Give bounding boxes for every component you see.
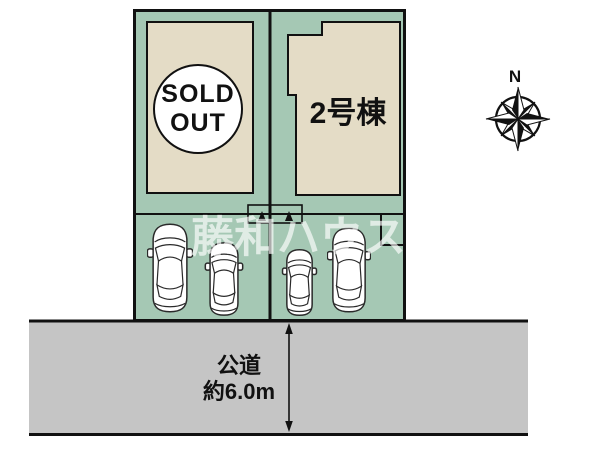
compass-north-label: N	[509, 67, 521, 86]
compass-rose-icon: N	[486, 67, 550, 151]
sold-out-badge: SOLD OUT	[153, 64, 243, 154]
road-width: 約6.0m	[179, 379, 299, 405]
site-plan-drawing: N	[0, 0, 600, 450]
car-icon	[327, 228, 370, 312]
car-icon	[205, 243, 242, 315]
road-label: 公道 約6.0m	[179, 353, 299, 405]
site-plan-canvas: N SOLD OUT 2号棟 藤和ハウス 公道 約6.0m	[0, 0, 600, 450]
building-2-label: 2号棟	[288, 88, 408, 132]
sold-out-line2: OUT	[170, 109, 226, 138]
car-icon	[283, 250, 317, 316]
road-name: 公道	[179, 353, 299, 379]
car-icon	[147, 224, 192, 311]
sold-out-line1: SOLD	[161, 80, 234, 109]
